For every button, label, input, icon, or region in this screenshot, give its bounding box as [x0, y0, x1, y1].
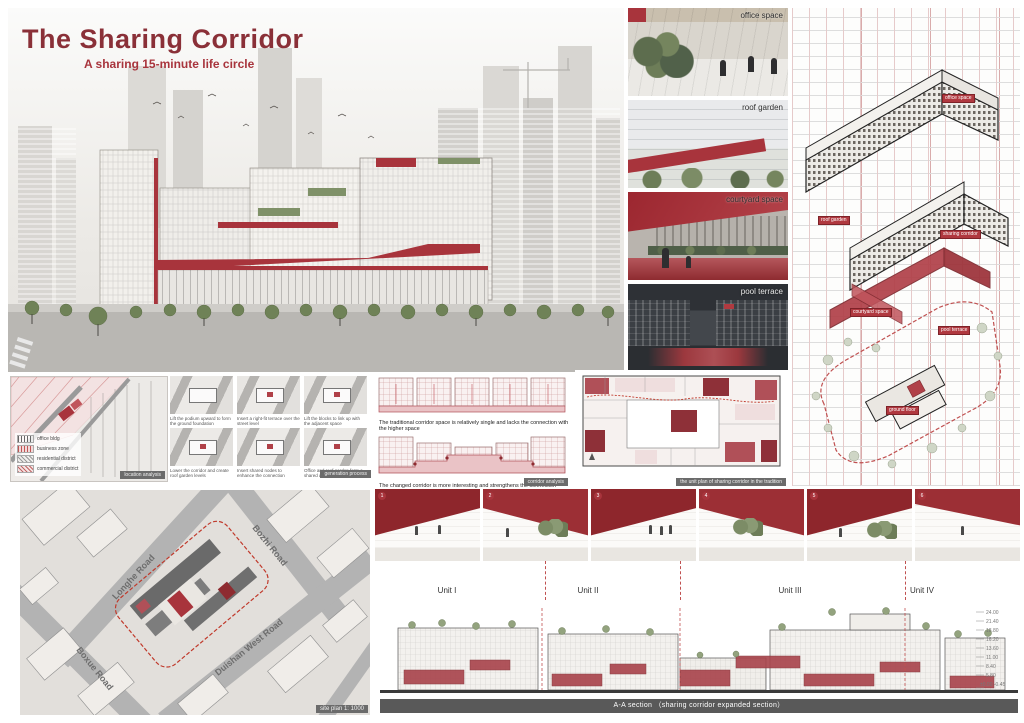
- planting: [865, 521, 897, 539]
- person-silhouette: [415, 526, 418, 535]
- page-title: The Sharing Corridor: [22, 24, 304, 55]
- ground-podium: [812, 302, 1002, 468]
- person-silhouette: [649, 525, 652, 534]
- axon-label-chip: pool terrace: [938, 326, 970, 335]
- person-silhouette: [438, 525, 441, 534]
- concept-tile-2: [237, 376, 300, 414]
- person-silhouette: [660, 526, 663, 535]
- vignette-number: 1: [378, 492, 386, 500]
- roof-planting: [628, 168, 788, 188]
- main-perspective-render: The Sharing Corridor A sharing 15-minute…: [8, 8, 624, 372]
- vignette-number: 2: [486, 492, 494, 500]
- photo-label: office space: [740, 11, 783, 20]
- concept-tile-4: [170, 428, 233, 466]
- ground-line: [380, 690, 1018, 693]
- level-text: 16.20: [986, 637, 999, 643]
- vignette-2: 2: [483, 489, 588, 561]
- person-silhouette: [662, 248, 669, 268]
- photo-courtyard-space: courtyard space: [628, 192, 788, 280]
- concept-tile-1: [170, 376, 233, 414]
- corridor-analysis-panel: The traditional corridor space is relati…: [377, 376, 570, 488]
- concept-caption: Lift the blocks to link up with the adja…: [304, 416, 367, 428]
- panel-badge: location analysis: [120, 471, 165, 479]
- red-insert: [334, 392, 340, 397]
- concept-caption: Lower the corridor and create roof garde…: [170, 468, 233, 480]
- vignette-number: 3: [594, 492, 602, 500]
- floor: [699, 548, 804, 561]
- plan-caption-badge: the unit plan of sharing corridor in the…: [676, 478, 786, 486]
- person-silhouette: [839, 528, 842, 537]
- section-buildings: [380, 608, 1018, 694]
- unit-label-1: Unit I: [438, 586, 457, 595]
- photo-office-space: office space: [628, 8, 788, 96]
- floor: [375, 548, 480, 561]
- red-insert: [267, 444, 273, 449]
- title-block: The Sharing Corridor A sharing 15-minute…: [22, 24, 304, 71]
- vignette-3: 3: [591, 489, 696, 561]
- pool-red-reflection: [648, 348, 768, 366]
- floor: [591, 548, 696, 561]
- concept-tile-6: [304, 428, 367, 466]
- site-plan-badge: site plan 1: 1000: [316, 705, 368, 713]
- concept-caption: Insert a right-fit terrace over the stre…: [237, 416, 300, 428]
- axon-label-chip: roof garden: [818, 216, 850, 225]
- legend-row: office bldg: [17, 435, 78, 443]
- person-silhouette: [720, 60, 726, 76]
- axon-label-chip: ground floor: [886, 406, 919, 415]
- site-plan-panel: Longhe Road Bozhi Road Boxue Road Duisha…: [20, 490, 370, 715]
- floor: [807, 548, 912, 561]
- concept-tile-3: [304, 376, 367, 414]
- red-plaza-floor: [628, 258, 788, 280]
- red-ceiling: [915, 489, 1020, 529]
- floor-plan-panel: the unit plan of sharing corridor in the…: [575, 370, 788, 488]
- photo-pool-terrace: pool terrace: [628, 284, 788, 372]
- red-flag: [724, 304, 734, 309]
- section-vignette-strip: 1 2 3 4 5 6: [375, 489, 1020, 561]
- concept-caption: Insert shared nodes to enhance the conne…: [237, 468, 300, 480]
- person-silhouette: [506, 528, 509, 537]
- person-silhouette: [748, 56, 754, 72]
- floor: [915, 548, 1020, 561]
- vignette-1: 1: [375, 489, 480, 561]
- concept-tile-5: [237, 428, 300, 466]
- traditional-corridor-diagram: [377, 376, 570, 414]
- panel-badge: corridor analysis: [524, 478, 568, 486]
- legend-swatch: [17, 435, 34, 443]
- hedge-row: [648, 246, 788, 255]
- legend-row: business zone: [17, 445, 78, 453]
- massing-block: [189, 388, 217, 403]
- level-text: 18.80: [986, 628, 999, 634]
- presentation-board: The Sharing Corridor A sharing 15-minute…: [0, 0, 1024, 723]
- person-silhouette: [669, 525, 672, 534]
- section-guide-line: [905, 561, 906, 600]
- legend-label: residential district: [37, 456, 76, 462]
- axon-label-chip: office space: [942, 94, 975, 103]
- level-text: 21.40: [986, 619, 999, 625]
- planting: [731, 518, 763, 536]
- axon-block-upper: [806, 70, 998, 192]
- plants: [632, 30, 696, 78]
- legend-swatch: [17, 455, 34, 463]
- section-guide-line: [545, 561, 546, 600]
- section-guide-line: [680, 561, 681, 600]
- legend-label: commercial district: [37, 466, 78, 472]
- floor-plan-drawing: [575, 370, 788, 474]
- legend-row: residential district: [17, 455, 78, 463]
- floor: [483, 548, 588, 561]
- photo-roof-garden: roof garden: [628, 100, 788, 188]
- page-subtitle: A sharing 15-minute life circle: [84, 57, 304, 71]
- person-silhouette: [771, 58, 777, 74]
- vignette-6: 6: [915, 489, 1020, 561]
- red-insert: [200, 444, 206, 449]
- photo-label: courtyard space: [726, 195, 783, 204]
- photo-label: pool terrace: [741, 287, 783, 296]
- night-facade-left: [628, 300, 690, 346]
- level-text: 24.00: [986, 610, 999, 616]
- panel-badge: generation process: [320, 470, 371, 478]
- map-legend: office bldg business zone residential di…: [15, 433, 81, 476]
- red-insert: [334, 444, 340, 449]
- level-text: 11.00: [986, 655, 998, 661]
- photo-column: office space roof garden courtyard space…: [628, 8, 788, 372]
- level-text: 8.40: [986, 664, 996, 670]
- person-silhouette: [961, 526, 964, 535]
- photo-label: roof garden: [742, 103, 783, 112]
- legend-swatch: [17, 445, 34, 453]
- site-plan-drawing: Longhe Road Bozhi Road Boxue Road Duisha…: [20, 490, 370, 715]
- vignette-number: 5: [810, 492, 818, 500]
- level-text: 5.80: [986, 673, 996, 679]
- red-insert: [267, 392, 273, 397]
- vignette-5: 5: [807, 489, 912, 561]
- axon-label-chip: courtyard space: [850, 308, 892, 317]
- legend-label: office bldg: [37, 436, 60, 442]
- concept-diagrams-panel: Lift the podium upward to form the groun…: [170, 376, 373, 480]
- level-text: ±0.00 -0.45: [980, 682, 1005, 688]
- vignette-number: 6: [918, 492, 926, 500]
- red-ceiling: [591, 489, 696, 539]
- level-text: 13.60: [986, 646, 999, 652]
- legend-label: business zone: [37, 446, 69, 452]
- aa-section-drawing: 24.00 21.40 18.80 16.20 13.60 11.00 8.40…: [380, 600, 1018, 698]
- aa-section-panel: 24.00 21.40 18.80 16.20 13.60 11.00 8.40…: [380, 600, 1018, 698]
- unit-label-4: Unit IV: [910, 586, 934, 595]
- red-accent: [628, 8, 646, 22]
- unit-label-3: Unit III: [778, 586, 801, 595]
- axon-label-chip: sharing corridor: [940, 230, 981, 239]
- corridor-text-1: The traditional corridor space is relati…: [379, 420, 570, 433]
- vignette-4: 4: [699, 489, 804, 561]
- person-silhouette: [686, 256, 691, 268]
- changed-corridor-diagram: [377, 435, 570, 477]
- planting: [536, 519, 568, 537]
- unit-label-2: Unit II: [578, 586, 599, 595]
- red-ceiling: [375, 489, 480, 539]
- location-map-panel: office bldg business zone residential di…: [10, 376, 168, 482]
- legend-swatch: [17, 465, 34, 473]
- legend-row: commercial district: [17, 465, 78, 473]
- exploded-axonometric-panel: office space roof garden sharing corrido…: [792, 8, 1020, 486]
- section-caption-bar: A-A section （sharing corridor expanded s…: [380, 699, 1018, 713]
- concept-caption: Lift the podium upward to form the groun…: [170, 416, 233, 428]
- vignette-number: 4: [702, 492, 710, 500]
